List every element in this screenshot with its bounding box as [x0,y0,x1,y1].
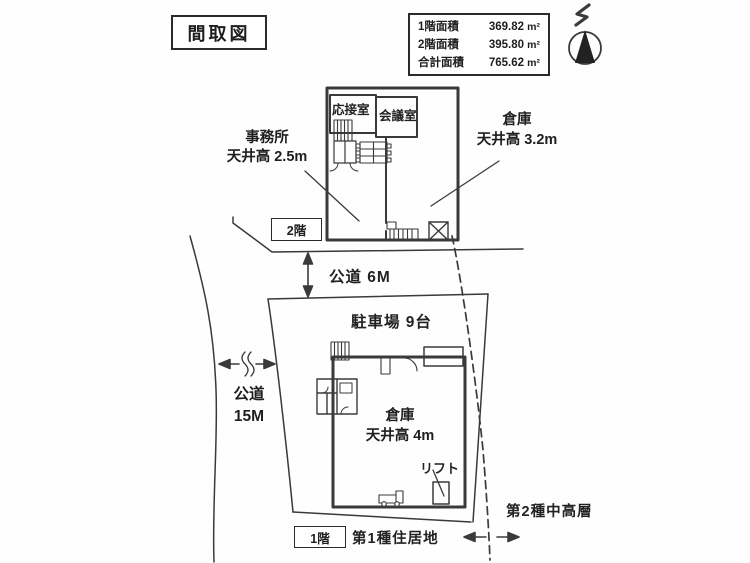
door-fixtures-1f [381,358,417,374]
office-leader-line [305,171,359,221]
arrowhead-down [304,286,313,297]
zoning-boundary-dashed-line [452,236,490,560]
area-unit: m² [524,18,540,36]
arrowhead-up [304,253,313,264]
zoning-boundary-arrows [464,533,519,542]
elevator-box-2f [429,222,448,240]
break-mark [242,352,254,376]
lift-label: リフト [420,458,459,477]
north-compass-icon [569,5,601,64]
lower-lot-bottom-edge [293,512,471,522]
road-6m-arrow [304,253,313,297]
meeting-room-label: 会議室 [379,105,417,124]
area-row-total: 合計面積 765.62 m² [418,54,540,72]
zoning-right-label: 第2種中高層 [506,500,593,521]
area-row-1f: 1階面積 369.82 m² [418,18,540,36]
warehouse-2f-name: 倉庫 [458,110,576,130]
area-unit: m² [524,36,540,54]
small-rooms-2f [330,141,358,171]
floor-tag-1f-text: 1階 [310,528,329,547]
warehouse-1f-annotation: 倉庫 天井高 4m [352,406,448,446]
door-arc [322,387,328,393]
area-label: 合計面積 [418,54,464,72]
side-road-name: 公道 [220,384,278,406]
arrowhead-right [264,360,275,369]
office-annotation: 事務所 天井高 2.5m [212,129,322,167]
parking-label: 駐車場 9台 [351,310,432,332]
door-arc [330,163,338,171]
floor-tag-2f-text: 2階 [287,220,306,239]
area-label: 2階面積 [418,36,459,54]
office-name: 事務所 [212,129,322,148]
steps-2f [387,222,418,240]
area-unit: m² [524,54,540,72]
floor-plan-image: 間取図 1階面積 369.82 m² 2階面積 395.80 m² 合計面積 7… [0,0,750,563]
left-boundary-line [190,236,216,562]
floor-tag-2f: 2階 [271,218,322,241]
office-ceiling-height: 天井高 2.5m [212,148,322,167]
door-arc [404,358,417,371]
stairs-2f [334,120,352,141]
area-value: 765.62 [478,54,524,72]
front-road-label: 公道 6M [329,265,391,287]
area-value: 395.80 [478,36,524,54]
zoning-left-label: 第1種住居地 [352,527,439,548]
compass-north-zigzag [576,5,589,25]
floor-tag-1f: 1階 [294,526,346,548]
side-road-label: 公道 15M [220,384,278,428]
compass-needle [575,30,595,63]
left-room-block-1f [317,379,357,414]
road-15m-arrow [219,352,275,376]
warehouse2f-leader-line [431,161,499,206]
area-value: 369.82 [478,18,524,36]
warehouse-2f-ceiling-height: 天井高 3.2m [458,130,576,150]
vehicle-icon [379,491,403,506]
warehouse-2f-annotation: 倉庫 天井高 3.2m [458,110,576,150]
arrowhead-left [219,360,230,369]
door-arc [350,163,358,171]
door-arc [341,407,348,414]
floor-area-table: 1階面積 369.82 m² 2階面積 395.80 m² 合計面積 765.6… [408,13,550,76]
area-row-2f: 2階面積 395.80 m² [418,36,540,54]
plan-title: 間取図 [188,20,251,46]
lift-box [433,482,449,504]
plan-title-box: 間取図 [171,15,267,50]
warehouse-1f-name: 倉庫 [352,406,448,426]
reception-room-label: 応接室 [332,99,370,118]
area-label: 1階面積 [418,18,459,36]
lower-lot-top-edge [268,294,488,299]
arrowhead-left [464,533,475,542]
side-road-width: 15M [220,406,278,428]
warehouse-1f-ceiling-height: 天井高 4m [352,426,448,446]
arrowhead-right [508,533,519,542]
